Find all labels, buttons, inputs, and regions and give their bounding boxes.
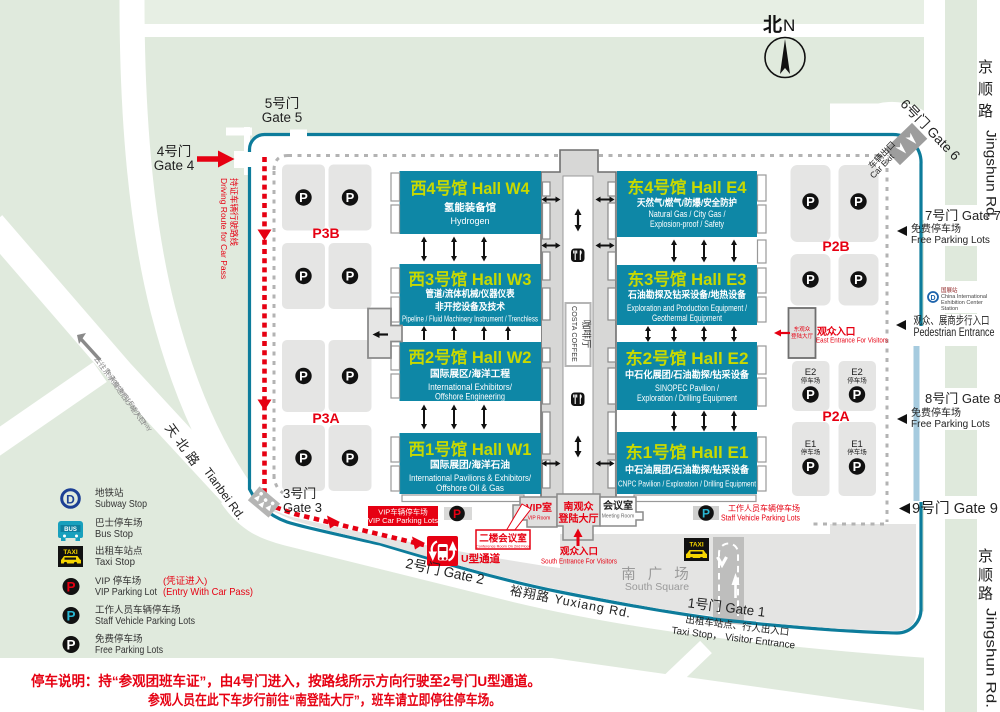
svg-text:Staff Vehicle Parking Lots: Staff Vehicle Parking Lots (95, 615, 195, 627)
svg-text:Gate 3: Gate 3 (283, 500, 322, 515)
svg-text:SINOPEC Pavilion /: SINOPEC Pavilion / (655, 383, 719, 393)
svg-text:VIP室: VIP室 (526, 501, 552, 514)
svg-text:D: D (66, 493, 75, 507)
svg-text:Gate 5: Gate 5 (262, 110, 303, 125)
svg-text:P: P (66, 580, 75, 595)
svg-text:路: 路 (978, 586, 993, 603)
svg-text:西3号馆 Hall W3: 西3号馆 Hall W3 (409, 269, 532, 289)
svg-text:VIP Parking Lot: VIP Parking Lot (95, 586, 157, 598)
svg-text:P: P (66, 609, 75, 624)
svg-text:国际展区/海洋工程: 国际展区/海洋工程 (430, 368, 511, 380)
svg-text:E2: E2 (805, 367, 817, 378)
svg-text:停车场: 停车场 (801, 376, 821, 385)
svg-text:东3号馆 Hall E3: 东3号馆 Hall E3 (628, 269, 747, 289)
svg-text:P2A: P2A (822, 408, 849, 424)
svg-text:East Entrance For Visitors: East Entrance For Visitors (816, 336, 888, 345)
svg-text:京: 京 (978, 548, 993, 565)
svg-text:P3B: P3B (312, 225, 339, 241)
svg-text:P: P (453, 507, 461, 521)
svg-text:U型通道: U型通道 (461, 552, 501, 565)
svg-text:5号门: 5号门 (265, 96, 300, 111)
svg-text:观众、展商步行入口: 观众、展商步行入口 (914, 313, 990, 327)
svg-text:停车说明：持“参观团班车证”，由4号门进入，按路线所示方向行: 停车说明：持“参观团班车证”，由4号门进入，按路线所示方向行驶至2号门U型通道。 (31, 673, 541, 689)
svg-text:TAXI: TAXI (689, 542, 704, 549)
svg-text:BUS: BUS (64, 527, 77, 533)
svg-text:Staff Vehicle Parking Lots: Staff Vehicle Parking Lots (721, 514, 800, 523)
svg-text:South Entrance For Visitors: South Entrance For Visitors (541, 557, 617, 566)
svg-text:International Pavilions & Exhi: International Pavilions & Exhibitors/ (409, 473, 531, 483)
svg-text:Natural Gas / City Gas /: Natural Gas / City Gas / (649, 209, 726, 219)
svg-text:VIP Room: VIP Room (528, 516, 551, 522)
svg-text:(Entry With Car Pass): (Entry With Car Pass) (163, 586, 253, 598)
svg-text:D: D (930, 295, 935, 302)
svg-text:工作人员车辆停车场: 工作人员车辆停车场 (728, 503, 800, 513)
svg-text:Hydrogen: Hydrogen (450, 216, 489, 226)
svg-text:中石油展团/石油勘探/钻采设备: 中石油展团/石油勘探/钻采设备 (625, 464, 749, 476)
svg-text:Taxi Stop: Taxi Stop (95, 556, 135, 568)
svg-text:Bus Stop: Bus Stop (95, 528, 133, 540)
svg-text:持证车辆行驶路线: 持证车辆行驶路线 (229, 178, 239, 247)
svg-text:Jingshun Rd.: Jingshun Rd. (984, 130, 999, 220)
svg-text:中石化展团/石油勘探/钻采设备: 中石化展团/石油勘探/钻采设备 (625, 369, 749, 381)
svg-text:VIP Car Parking Lots: VIP Car Parking Lots (368, 516, 438, 525)
svg-text:非开挖设备及技术: 非开挖设备及技术 (435, 301, 505, 313)
svg-text:Offshore Oil & Gas: Offshore Oil & Gas (436, 483, 504, 493)
svg-text:Explosion-proof / Safety: Explosion-proof / Safety (650, 219, 724, 229)
svg-text:氢能装备馆: 氢能装备馆 (444, 201, 496, 214)
svg-text:Driving Route for Car Pass: Driving Route for Car Pass (219, 178, 229, 279)
svg-text:9号门 Gate 9: 9号门 Gate 9 (912, 500, 998, 517)
svg-text:顺: 顺 (978, 567, 993, 584)
svg-text:东2号馆 Hall E2: 东2号馆 Hall E2 (626, 348, 749, 368)
svg-text:Meeting Room: Meeting Room (602, 514, 635, 520)
svg-text:COSTA COFFEE: COSTA COFFEE (570, 306, 577, 362)
svg-text:西4号馆 Hall W4: 西4号馆 Hall W4 (411, 178, 531, 198)
svg-text:Subway Stop: Subway Stop (95, 498, 147, 510)
svg-text:E2: E2 (851, 367, 863, 378)
svg-text:南观众: 南观众 (564, 500, 595, 513)
svg-text:P3A: P3A (312, 410, 339, 426)
svg-text:Pedestrian Entrance: Pedestrian Entrance (914, 327, 995, 339)
svg-text:北: 北 (763, 14, 782, 36)
svg-text:停车场: 停车场 (847, 376, 867, 385)
svg-text:东1号馆 Hall E1: 东1号馆 Hall E1 (626, 442, 749, 462)
svg-text:管道/流体机械/仪器仪表: 管道/流体机械/仪器仪表 (426, 288, 515, 300)
svg-text:N: N (783, 16, 795, 35)
svg-text:西2号馆 Hall W2: 西2号馆 Hall W2 (409, 347, 532, 367)
svg-text:P: P (66, 638, 75, 653)
svg-text:天然气/燃气/防爆/安全防护: 天然气/燃气/防爆/安全防护 (637, 197, 737, 209)
svg-text:CNPC Pavilion / Exploration /: CNPC Pavilion / Exploration / Drilling E… (618, 479, 756, 489)
svg-text:免费停车场: 免费停车场 (911, 406, 961, 419)
svg-text:Free Parking Lots: Free Parking Lots (911, 419, 990, 430)
svg-text:Free Parking Lots: Free Parking Lots (95, 644, 163, 656)
svg-text:东4号馆 Hall E4: 东4号馆 Hall E4 (628, 177, 748, 197)
svg-text:石油勘探及钻采设备/地热设备: 石油勘探及钻采设备/地热设备 (627, 289, 746, 301)
svg-text:Exploration / Drilling Equipme: Exploration / Drilling Equipment (637, 393, 737, 403)
svg-text:P: P (702, 507, 710, 521)
svg-text:3号门: 3号门 (283, 486, 316, 501)
svg-text:Pipeline / Fluid Machinery Ins: Pipeline / Fluid Machinery Instrument / … (402, 315, 538, 324)
svg-text:Conference Room On 2nd Floor: Conference Room On 2nd Floor (476, 545, 531, 549)
svg-text:顺: 顺 (978, 81, 993, 98)
svg-text:8号门 Gate 8: 8号门 Gate 8 (925, 391, 1000, 406)
svg-text:参观人员在此下车步行前往“南登陆大厅”，班车请立即停往停车场: 参观人员在此下车步行前往“南登陆大厅”，班车请立即停往停车场。 (148, 692, 501, 708)
svg-text:Jingshun Rd.: Jingshun Rd. (984, 608, 1000, 708)
svg-text:Gate 4: Gate 4 (154, 158, 195, 173)
svg-text:P2B: P2B (822, 238, 849, 254)
svg-text:国际展团/海洋石油: 国际展团/海洋石油 (430, 459, 510, 471)
svg-text:登陆大厅: 登陆大厅 (558, 512, 599, 525)
svg-text:Station: Station (941, 306, 958, 312)
svg-text:国展站: 国展站 (941, 286, 958, 294)
svg-text:International Exhibitors/: International Exhibitors/ (428, 382, 512, 392)
svg-text:停车场: 停车场 (847, 447, 867, 456)
svg-text:South Square: South Square (625, 581, 689, 593)
svg-text:Geothermal Equipment: Geothermal Equipment (652, 313, 722, 323)
svg-text:二楼会议室: 二楼会议室 (479, 533, 527, 545)
svg-text:4号门: 4号门 (157, 144, 192, 159)
svg-text:TAXI: TAXI (63, 549, 78, 556)
svg-text:京: 京 (978, 59, 993, 76)
svg-text:Free Parking Lots: Free Parking Lots (911, 235, 990, 246)
svg-text:路: 路 (978, 103, 993, 120)
svg-text:Offshore Engineering: Offshore Engineering (435, 392, 505, 402)
svg-text:东观众: 东观众 (794, 325, 811, 333)
svg-text:登陆大厅: 登陆大厅 (791, 332, 814, 340)
svg-text:咖啡厅: 咖啡厅 (580, 320, 592, 349)
svg-text:停车场: 停车场 (801, 447, 821, 456)
svg-text:Exploration and Production Equ: Exploration and Production Equipment / (627, 303, 747, 313)
svg-text:西1号馆 Hall W1: 西1号馆 Hall W1 (409, 439, 532, 459)
svg-text:免费停车场: 免费停车场 (911, 222, 961, 235)
svg-text:VIP车辆停车场: VIP车辆停车场 (378, 507, 428, 517)
svg-text:会议室: 会议室 (603, 499, 633, 512)
